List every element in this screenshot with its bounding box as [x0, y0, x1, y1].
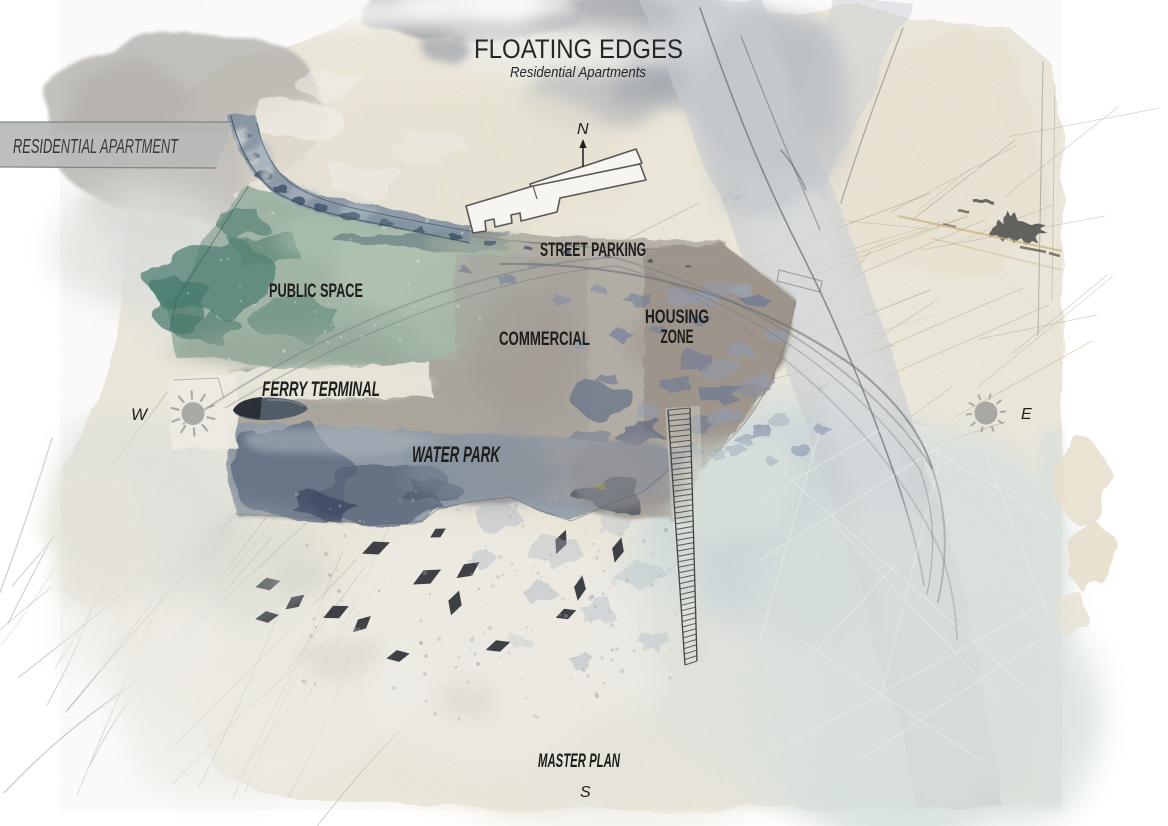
svg-text:Residential Apartments: Residential Apartments: [510, 64, 646, 81]
svg-text:N: N: [577, 121, 589, 138]
svg-text:W: W: [131, 405, 149, 424]
svg-text:E: E: [1021, 406, 1032, 423]
svg-text:COMMERCIAL: COMMERCIAL: [499, 328, 590, 350]
svg-text:FLOATING EDGES: FLOATING EDGES: [474, 34, 683, 64]
svg-text:PUBLIC SPACE: PUBLIC SPACE: [269, 280, 363, 302]
svg-text:HOUSING: HOUSING: [645, 306, 709, 328]
svg-text:STREET PARKING: STREET PARKING: [540, 239, 646, 261]
svg-text:FERRY TERMINAL: FERRY TERMINAL: [262, 378, 380, 401]
svg-text:S: S: [580, 784, 591, 801]
svg-text:ZONE: ZONE: [661, 326, 694, 348]
svg-text:WATER PARK: WATER PARK: [412, 442, 501, 467]
svg-text:MASTER PLAN: MASTER PLAN: [538, 750, 621, 772]
